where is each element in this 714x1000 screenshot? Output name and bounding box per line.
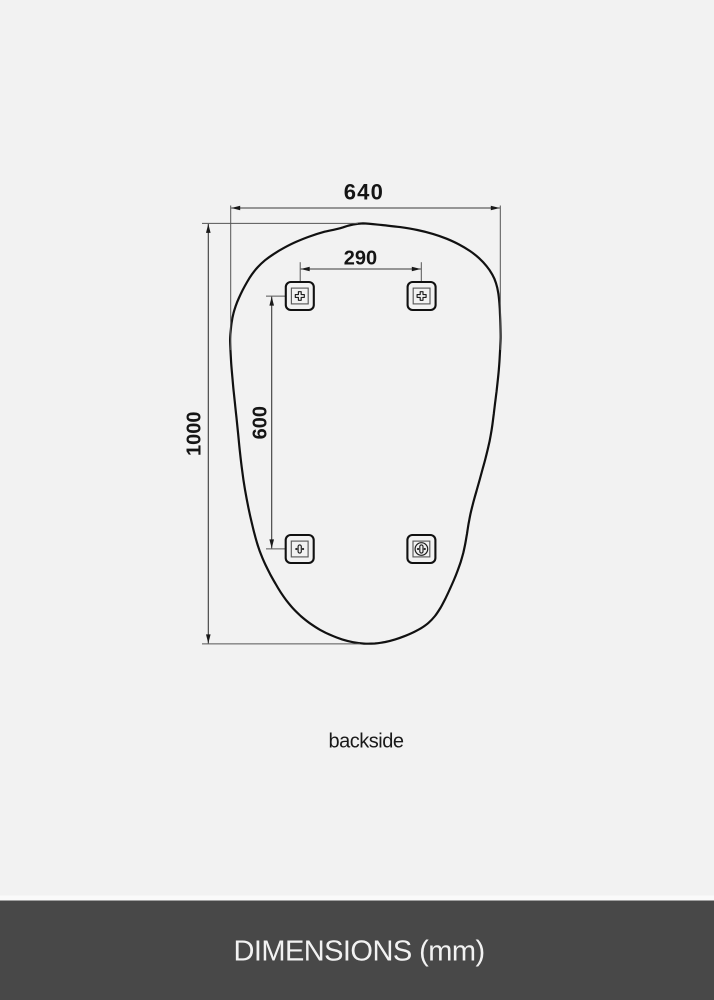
svg-text:290: 290 xyxy=(344,248,377,270)
svg-text:backside: backside xyxy=(329,730,404,752)
svg-text:1000: 1000 xyxy=(184,412,206,457)
svg-text:640: 640 xyxy=(344,179,384,204)
svg-text:DIMENSIONS (mm): DIMENSIONS (mm) xyxy=(233,935,484,967)
svg-text:600: 600 xyxy=(249,406,271,439)
